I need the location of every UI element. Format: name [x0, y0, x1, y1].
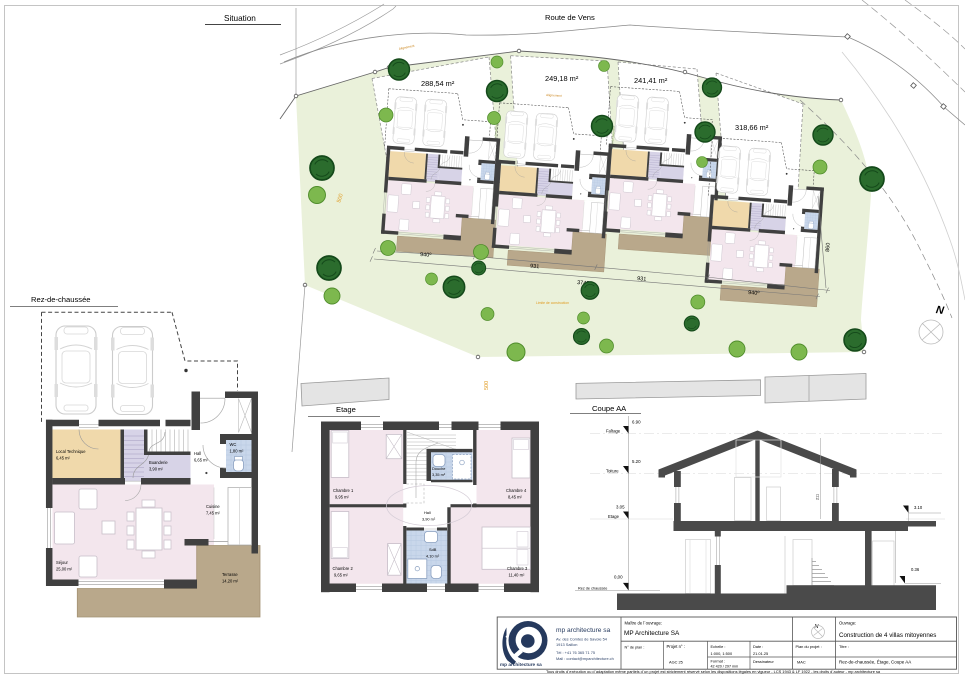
svg-text:AGC 25: AGC 25: [669, 660, 683, 665]
svg-text:mp architecture sa: mp architecture sa: [500, 662, 542, 667]
svg-text:MP Architecture SA: MP Architecture SA: [624, 630, 680, 637]
svg-text:Cuisine: Cuisine: [206, 504, 220, 509]
svg-text:Tous droits d`exécution ou d`a: Tous droits d`exécution ou d`adaptation …: [546, 669, 881, 674]
svg-text:7,45 m²: 7,45 m²: [206, 511, 221, 516]
svg-text:1:000, 1:500: 1:000, 1:500: [711, 651, 733, 656]
svg-text:14,20 m²: 14,20 m²: [222, 579, 239, 584]
svg-text:11,40 m²: 11,40 m²: [509, 573, 525, 578]
svg-text:1913 Saillon: 1913 Saillon: [556, 642, 577, 647]
svg-text:Coupe AA: Coupe AA: [592, 404, 627, 413]
svg-text:Alignement: Alignement: [546, 93, 562, 98]
svg-text:Ouvrage:: Ouvrage:: [839, 621, 856, 626]
svg-text:241,41 m²: 241,41 m²: [634, 76, 668, 85]
svg-text:1,80 m²: 1,80 m²: [230, 449, 245, 454]
svg-text:Hall: Hall: [424, 510, 431, 515]
svg-text:3.10: 3.10: [914, 505, 923, 510]
svg-text:931: 931: [530, 264, 540, 271]
svg-text:Dessinateur: Dessinateur: [753, 659, 774, 664]
svg-text:Chambre 2: Chambre 2: [333, 566, 354, 571]
svg-text:Toiture: Toiture: [606, 469, 619, 474]
svg-text:Chambre 3: Chambre 3: [507, 566, 528, 571]
svg-text:Route de Vens: Route de Vens: [545, 13, 595, 22]
svg-text:SdB: SdB: [429, 547, 437, 552]
svg-text:288,54 m²: 288,54 m²: [421, 79, 455, 88]
svg-text:9,65 m²: 9,65 m²: [334, 573, 349, 578]
svg-text:5.20: 5.20: [632, 459, 641, 464]
svg-text:Construction de 4 villas mitoy: Construction de 4 villas mitoyennes: [839, 632, 936, 639]
svg-text:Projet n° :: Projet n° :: [667, 644, 685, 649]
svg-text:Maître de l`ouvrage:: Maître de l`ouvrage:: [625, 621, 662, 626]
svg-text:N° de plan :: N° de plan :: [625, 646, 645, 650]
svg-text:Rez de chaussée: Rez de chaussée: [578, 587, 607, 591]
svg-text:Titre :: Titre :: [839, 644, 849, 649]
svg-text:Format :: Format :: [711, 659, 725, 664]
svg-text:Hall: Hall: [194, 451, 201, 456]
svg-text:Terrasse: Terrasse: [222, 572, 238, 577]
svg-text:Douche: Douche: [432, 466, 445, 471]
svg-text:940⁰: 940⁰: [420, 251, 433, 259]
svg-text:Buanderie: Buanderie: [149, 460, 168, 465]
svg-text:4,10 m²: 4,10 m²: [426, 554, 440, 559]
svg-text:Mail : contact@mparchitecture.: Mail : contact@mparchitecture.ch: [556, 656, 614, 661]
svg-text:25,00 m²: 25,00 m²: [56, 567, 73, 572]
svg-text:Situation: Situation: [224, 14, 256, 23]
svg-text:Chambre 4: Chambre 4: [506, 488, 527, 493]
svg-text:Faîtage: Faîtage: [606, 429, 621, 434]
svg-text:Limite de construction: Limite de construction: [536, 301, 569, 305]
svg-text:mp architecture sa: mp architecture sa: [556, 627, 611, 634]
svg-text:249,18 m²: 249,18 m²: [545, 74, 579, 83]
svg-text:931: 931: [637, 276, 647, 283]
svg-text:Séjour: Séjour: [56, 560, 68, 565]
svg-text:Av. des Comtes de Savoie 54: Av. des Comtes de Savoie 54: [556, 637, 608, 642]
svg-text:6.90: 6.90: [632, 420, 641, 425]
svg-text:318,66 m²: 318,66 m²: [735, 123, 769, 132]
svg-text:0.36: 0.36: [911, 567, 920, 572]
svg-text:Echelle :: Echelle :: [711, 644, 726, 649]
svg-text:Rez-de-chaussée, Étage, Coupe: Rez-de-chaussée, Étage, Coupe AA: [839, 659, 911, 665]
svg-text:860: 860: [825, 242, 832, 252]
svg-text:211: 211: [816, 494, 820, 500]
svg-text:3,90 m²: 3,90 m²: [149, 467, 164, 472]
svg-text:3,35 m²: 3,35 m²: [432, 472, 446, 477]
svg-text:940⁰: 940⁰: [748, 289, 761, 297]
svg-text:8,45 m²: 8,45 m²: [508, 495, 523, 500]
svg-text:Chambre 1: Chambre 1: [333, 488, 354, 493]
svg-text:WC: WC: [230, 442, 237, 447]
svg-text:MAC: MAC: [797, 660, 806, 665]
svg-text:Rez-de-chaussée: Rez-de-chaussée: [31, 295, 91, 304]
svg-text:9,95 m²: 9,95 m²: [335, 495, 350, 500]
svg-text:0,00: 0,00: [614, 575, 623, 580]
svg-text:3.05: 3.05: [616, 505, 625, 510]
svg-text:Local Technique: Local Technique: [56, 449, 86, 454]
svg-text:500: 500: [484, 381, 490, 390]
svg-text:21.01.25: 21.01.25: [753, 651, 768, 656]
svg-text:6,45 m²: 6,45 m²: [56, 456, 71, 461]
svg-text:Etage: Etage: [608, 514, 620, 519]
svg-text:3,90 m²: 3,90 m²: [422, 517, 436, 522]
svg-text:Date :: Date :: [753, 644, 763, 649]
svg-text:Tél : +41 76 365 71 75: Tél : +41 76 365 71 75: [556, 650, 595, 655]
svg-text:Etage: Etage: [336, 405, 356, 414]
svg-text:Plan du projet :: Plan du projet :: [796, 644, 822, 649]
svg-text:6,65 m²: 6,65 m²: [194, 458, 209, 463]
